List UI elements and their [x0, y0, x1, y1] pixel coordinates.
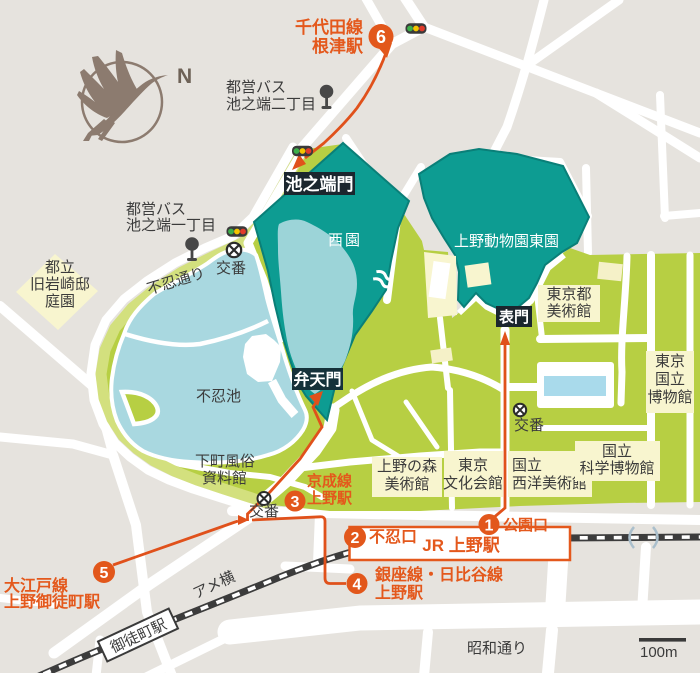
svg-text:東京: 東京 [458, 457, 488, 474]
svg-text:庭園: 庭園 [45, 293, 75, 310]
svg-text:都立: 都立 [45, 259, 75, 276]
svg-text:京成線: 京成線 [307, 472, 352, 490]
svg-text:3: 3 [291, 494, 300, 511]
svg-text:100m: 100m [640, 644, 678, 661]
svg-text:不忍口: 不忍口 [369, 528, 417, 546]
svg-text:上野駅: 上野駅 [375, 584, 424, 602]
svg-text:国立: 国立 [602, 443, 632, 460]
svg-text:5: 5 [100, 565, 109, 582]
svg-text:交番: 交番 [249, 502, 279, 520]
svg-text:2: 2 [351, 530, 360, 547]
svg-text:公園口: 公園口 [503, 517, 548, 534]
svg-text:根津駅: 根津駅 [312, 36, 364, 56]
svg-text:上野の森: 上野の森 [377, 458, 437, 475]
svg-text:美術館: 美術館 [384, 476, 429, 493]
svg-text:旧岩崎邸: 旧岩崎邸 [30, 276, 90, 293]
svg-text:1: 1 [485, 518, 494, 535]
svg-text:交番: 交番 [216, 259, 246, 277]
svg-text:弁天門: 弁天門 [293, 370, 341, 389]
svg-text:池之端門: 池之端門 [286, 174, 354, 194]
svg-text:大江戸線: 大江戸線 [4, 576, 68, 595]
svg-text:上野動物園東園: 上野動物園東園 [454, 233, 559, 250]
svg-text:不忍池: 不忍池 [196, 388, 241, 405]
svg-text:下町風俗: 下町風俗 [195, 453, 255, 470]
svg-text:東京: 東京 [655, 353, 685, 370]
svg-text:4: 4 [353, 577, 362, 594]
svg-text:西園: 西園 [328, 232, 362, 249]
svg-text:上野駅: 上野駅 [307, 490, 353, 507]
svg-text:N: N [177, 65, 192, 88]
svg-text:交番: 交番 [514, 416, 544, 434]
svg-text:昭和通り: 昭和通り [467, 640, 527, 657]
svg-text:東京都: 東京都 [546, 286, 591, 303]
svg-text:美術館: 美術館 [546, 303, 591, 320]
svg-text:博物館: 博物館 [647, 389, 692, 406]
svg-text:文化会館: 文化会館 [443, 475, 503, 492]
svg-text:上野御徒町駅: 上野御徒町駅 [4, 592, 101, 611]
svg-text:銀座線・日比谷線: 銀座線・日比谷線 [375, 565, 503, 584]
svg-text:都営バス: 都営バス [126, 201, 186, 218]
svg-text:JR 上野駅: JR 上野駅 [422, 536, 500, 555]
svg-text:千代田線: 千代田線 [295, 17, 363, 37]
svg-text:資料館: 資料館 [202, 470, 247, 487]
svg-text:国立: 国立 [512, 457, 542, 474]
svg-text:都営バス: 都営バス [226, 79, 286, 96]
svg-text:池之端二丁目: 池之端二丁目 [226, 96, 316, 113]
svg-text:科学博物館: 科学博物館 [579, 460, 654, 477]
svg-text:池之端一丁目: 池之端一丁目 [126, 217, 216, 234]
svg-text:表門: 表門 [499, 308, 529, 326]
svg-text:6: 6 [376, 27, 386, 47]
svg-text:国立: 国立 [655, 371, 685, 388]
